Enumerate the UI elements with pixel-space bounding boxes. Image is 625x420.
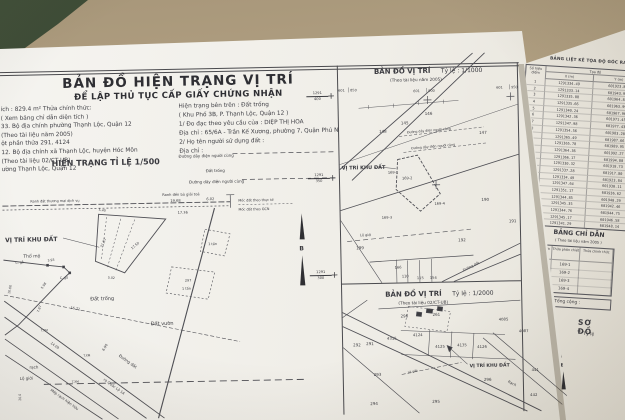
tomb-label: Thổ mộ bbox=[22, 252, 40, 259]
parcel-number: 166 bbox=[395, 265, 403, 269]
dim-label: 21.87 bbox=[99, 238, 107, 248]
dim-label: 14.09 bbox=[50, 341, 60, 350]
parcel-number: 199 bbox=[356, 245, 364, 250]
parcel-number: 290 bbox=[401, 313, 409, 318]
map1-heading: HIỆN TRẠNG TỈ LỆ 1/500 bbox=[51, 155, 160, 168]
parcel-number: 169-1 bbox=[388, 171, 399, 175]
parcel-number: 4085 bbox=[499, 316, 509, 321]
grid-y-value: 350 bbox=[308, 177, 330, 183]
dim-label: 6.02 bbox=[206, 197, 214, 201]
parcel-number: 190 bbox=[481, 197, 489, 202]
post-marker-label: T.XM bbox=[82, 353, 91, 357]
grid-cross-icon: + bbox=[327, 93, 335, 102]
table-cell: 169-4 bbox=[550, 284, 578, 295]
post-marker-label: T.XM bbox=[40, 328, 49, 332]
map-2-1000-location: BẢN ĐỒ VỊ TRÍ Tỷ lệ : 1/1000 (Theo tài l… bbox=[338, 57, 521, 283]
dim-label: 16.71 bbox=[70, 306, 80, 312]
grid-cross-icon: + bbox=[329, 175, 337, 184]
parcel-number: 4087 bbox=[519, 328, 529, 333]
dim-label: 5.98 bbox=[40, 282, 47, 290]
dirt-road-label: Đường đất bbox=[118, 353, 138, 370]
commercial-boundary-label: Ranh đất thương mại dịch vụ bbox=[30, 199, 79, 204]
house-297-label: 297 bbox=[185, 279, 192, 283]
parcel-number: 442 bbox=[530, 392, 538, 397]
parcel-number: 4315 bbox=[387, 336, 397, 341]
parcel-number: 169-3 bbox=[382, 216, 393, 220]
canal-edge-label: Mép rạch hiện hữu bbox=[50, 388, 80, 411]
road-limit-label: Lộ giới bbox=[20, 376, 33, 381]
parcel-number: 169-4 bbox=[434, 202, 445, 206]
road-limit-label: Lộ giới bbox=[360, 233, 371, 237]
creek-label: rạch bbox=[29, 364, 38, 369]
parcel-number: 261 bbox=[433, 312, 441, 317]
power-line-label: Đường dây điện người cùng bbox=[178, 153, 234, 159]
map-1-500-current-status: HIỆN TRẠNG TỈ LỆ 1/500 Đường dây điện ng… bbox=[1, 143, 343, 420]
guide-table-source: ( Theo tài liệu năm 2005 ) bbox=[555, 238, 602, 245]
grid-coordinate-label: 1291 400 bbox=[306, 91, 328, 102]
parcel-number: 154 bbox=[430, 276, 438, 280]
marker-actual-label: Mốc đất theo thực tế bbox=[238, 198, 274, 203]
dim-label: 10.00 bbox=[7, 285, 13, 295]
power-line-label: Đường dây điện người cùng bbox=[189, 178, 245, 184]
wood-post-label: C. gỗ bbox=[60, 275, 68, 280]
parcel-number: 294 bbox=[370, 401, 378, 406]
parcel-number: 110 bbox=[402, 274, 410, 278]
power-line-label: Đường dây điện người cùng bbox=[407, 127, 451, 135]
parcel-number: 4126 bbox=[477, 344, 487, 349]
ton-roof-house-label: 1 tấn bbox=[182, 287, 191, 291]
parcel-number: 146 bbox=[425, 111, 433, 116]
grid-x-value: 601 bbox=[413, 89, 420, 93]
power-line-label: Đường dây điện người cùng bbox=[411, 143, 455, 151]
north-letter: B bbox=[299, 245, 304, 252]
dim-label: 19.68 bbox=[170, 199, 181, 203]
dim-label: 17.50 bbox=[130, 241, 140, 250]
grid-y-value: 400 bbox=[306, 95, 328, 101]
parcel-number: 441 bbox=[532, 367, 540, 372]
grid-y-value: 300 bbox=[310, 274, 332, 280]
road-limit-label: Lộ giới bbox=[407, 369, 418, 375]
grid-x-value: 601 bbox=[496, 86, 503, 90]
marker-gcn-label: Mốc đất theo GCN bbox=[238, 207, 269, 212]
parcel-number: 291 bbox=[366, 341, 374, 346]
vacant-label-small: Đất trống bbox=[206, 168, 226, 173]
dirt-road-label: Đường đất bbox=[462, 261, 480, 273]
dim-label: 5.02 bbox=[108, 275, 115, 280]
parcel-number: 169-2 bbox=[402, 176, 413, 180]
dim-label: 5.40 bbox=[98, 208, 106, 213]
map3-title: BẢN ĐỒ VỊ TRÍ bbox=[385, 288, 442, 299]
map-3-2000-location: BẢN ĐỒ VỊ TRÍ Tỷ lệ : 1/2000 (Theo tài l… bbox=[342, 281, 574, 414]
vacant-label: Đất trống bbox=[90, 295, 114, 302]
parcel-number: 292 bbox=[353, 342, 361, 347]
post-marker-label: T.XM bbox=[71, 380, 80, 384]
table-cell bbox=[578, 286, 611, 297]
site-location-label: VỊ TRÍ KHU ĐẤT bbox=[342, 163, 386, 172]
north-arrow-icon: B bbox=[299, 213, 306, 285]
parcel-number: 147 bbox=[479, 130, 487, 135]
parcel-number: 295 bbox=[432, 399, 440, 404]
site-location-label: VỊ TRÍ KHU ĐẤT bbox=[5, 235, 58, 244]
grid-y-value: 950 bbox=[511, 85, 518, 89]
wood-post-label: C. gỗ bbox=[15, 259, 24, 265]
parcel-number: 293 bbox=[374, 372, 382, 377]
grid-coordinate-label: 1291 350 bbox=[308, 173, 330, 184]
site-location-label: VỊ TRÍ KHU ĐẤT bbox=[469, 360, 510, 369]
map2-source: (Theo tài liệu năm 2005) bbox=[390, 77, 442, 83]
parcel-number: 4135 bbox=[457, 342, 467, 347]
parcel-number: 145 bbox=[401, 120, 409, 125]
map2-title: BẢN ĐỒ VỊ TRÍ bbox=[374, 65, 431, 76]
parcel-number: 192 bbox=[458, 237, 466, 242]
creek-label: Rạch bbox=[507, 380, 517, 388]
grid-y-value: 900 bbox=[428, 89, 435, 93]
map2-scale: Tỷ lệ : 1/1000 bbox=[440, 67, 483, 75]
dim-label: 3.93 bbox=[47, 258, 55, 263]
clearance-boundary-label: Ranh đền bù giải toả bbox=[162, 192, 199, 197]
dim-label: 17.36 bbox=[178, 211, 189, 215]
dim-label: 6.90 bbox=[101, 343, 108, 352]
map3-scale: Tỷ lệ : 1/2000 bbox=[451, 290, 494, 298]
diagram-scale-label: Tỷ lệ bbox=[583, 332, 594, 338]
dim-label: 20.0 bbox=[18, 394, 22, 401]
garden-label: Đất vườn bbox=[151, 320, 174, 327]
grid-x-value: 601 bbox=[338, 89, 345, 93]
grid-cross-icon: + bbox=[331, 272, 339, 281]
parcel-number: 148 bbox=[379, 129, 387, 134]
ton-roof-house-label: 1 tấn bbox=[208, 242, 217, 246]
parcel-number: 296 bbox=[484, 377, 492, 382]
parcel-number: 191 bbox=[509, 218, 517, 223]
grid-y-value: 850 bbox=[350, 88, 357, 92]
photo-of-cadastral-documents: BẢN ĐỒ HIỆN TRẠNG VỊ TRÍ ĐỂ LẬP THỦ TỤC … bbox=[0, 0, 625, 420]
parcel-number: 115 bbox=[417, 276, 424, 280]
parcel-number: 4124 bbox=[413, 332, 423, 337]
to-highway-label: ra Quốc Lộ 1A bbox=[103, 378, 126, 396]
parcel-number: 4125 bbox=[435, 344, 445, 349]
grid-coordinate-label: 1291 300 bbox=[310, 270, 332, 281]
column-header-point: Số hiệu điểm bbox=[526, 65, 547, 79]
map3-source: (Theo tài liệu 02/CT-UB) bbox=[398, 300, 448, 306]
